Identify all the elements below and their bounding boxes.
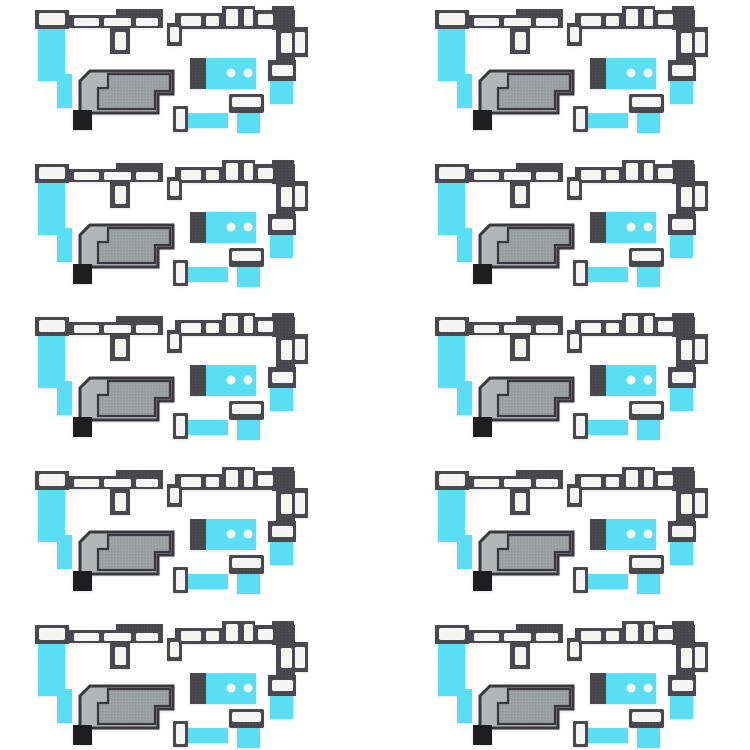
sticker-set-row2-col1	[35, 160, 308, 287]
product-photo-canvas	[0, 0, 750, 750]
sticker-set-row3-col2	[435, 313, 708, 440]
sticker-set-row1-col2	[435, 6, 708, 133]
sticker-set-row1-col1	[35, 6, 308, 133]
sticker-set-row2-col2	[435, 160, 708, 287]
sticker-set-row4-col2	[435, 467, 708, 594]
sticker-set-row4-col1	[35, 467, 308, 594]
sticker-set-row5-col1	[35, 621, 308, 748]
sticker-set-row3-col1	[35, 313, 308, 440]
sticker-set-row5-col2	[435, 621, 708, 748]
sticker-sheet-photo	[0, 0, 750, 750]
